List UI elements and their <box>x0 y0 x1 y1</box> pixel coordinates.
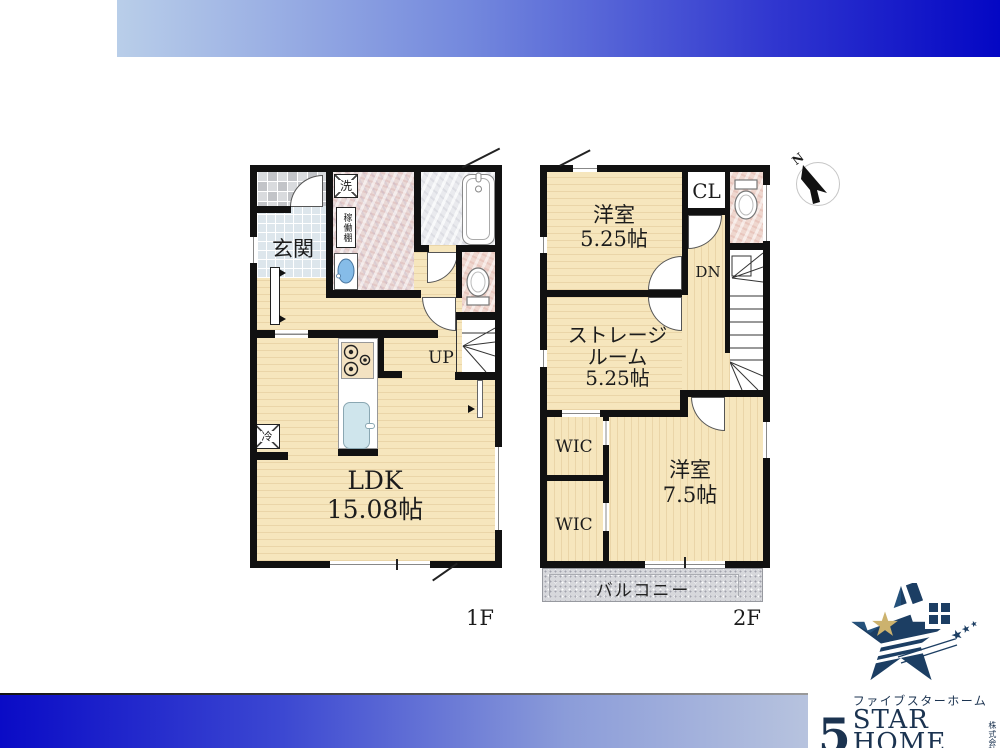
understair-door <box>477 380 483 418</box>
washbasin-icon <box>335 254 357 289</box>
wall <box>725 243 763 250</box>
toilet1-icon <box>462 252 495 312</box>
bottom-gradient-banner <box>0 695 808 748</box>
cabinet-arrow <box>279 315 286 323</box>
bedroom1-label: 洋室 5.25帖 <box>560 203 668 251</box>
company-logo-text: 5 ファイブスターホーム STAR HOME 株式 会社 <box>818 692 1000 748</box>
balcony-label: バルコニー <box>543 576 743 601</box>
laundry-box: 洗 <box>334 174 358 198</box>
sink-handle <box>365 423 375 429</box>
logo-latin: STAR HOME <box>853 709 988 748</box>
door-gap <box>603 421 609 445</box>
wall <box>257 206 291 213</box>
wall <box>688 390 763 397</box>
wic-lower-label: WIC <box>548 515 600 535</box>
toilet2-icon <box>730 172 763 243</box>
stove <box>341 342 374 379</box>
kitchen-sink <box>343 402 370 449</box>
compass: N <box>792 156 844 208</box>
genkan-label: 玄関 <box>260 233 326 263</box>
storage-name2: ルーム <box>555 347 680 369</box>
floor2-plan: バルコニー <box>540 165 770 605</box>
logo-corp-bottom: 会社 <box>988 739 1000 748</box>
floor-plan-page: N 洗 稼 <box>0 0 1000 748</box>
bedroom2-size: 7.5帖 <box>632 483 748 508</box>
counter-cap <box>338 449 378 456</box>
shelf-label: 稼働棚 <box>342 213 351 243</box>
bedroom1-name: 洋室 <box>560 203 668 227</box>
fridge-box: 冷 <box>254 424 280 449</box>
ldk-label: LDK 15.08帖 <box>305 467 445 525</box>
wall-outer <box>250 165 257 568</box>
fridge-label: 冷 <box>261 431 274 442</box>
faucet-icon <box>471 171 487 197</box>
window <box>763 185 770 241</box>
wall <box>688 208 727 215</box>
ldk-size: 15.08帖 <box>305 496 445 525</box>
window-tick <box>684 557 686 568</box>
wall <box>455 372 495 380</box>
bedroom1-size: 5.25帖 <box>560 227 668 251</box>
floor1-plan: 洗 稼働棚 <box>250 165 502 568</box>
shelf-box: 稼働棚 <box>336 207 356 248</box>
wall <box>308 330 438 338</box>
down-label: DN <box>690 263 726 281</box>
wall <box>326 165 333 298</box>
wall <box>456 312 495 320</box>
stove-burners-icon <box>342 343 373 378</box>
window <box>330 561 430 568</box>
wall <box>680 390 688 417</box>
wall <box>547 475 603 481</box>
ldk-name: LDK <box>305 467 445 496</box>
wall <box>333 290 421 298</box>
window <box>495 447 502 530</box>
vent <box>540 237 547 253</box>
storage-label: ストレージ ルーム 5.25帖 <box>555 325 680 390</box>
window <box>763 422 770 458</box>
laundry-label: 洗 <box>339 180 353 192</box>
door-gap <box>562 410 600 417</box>
logo-mid: ファイブスターホーム STAR HOME <box>853 692 988 748</box>
logo-corp: 株式 会社 <box>988 722 1000 748</box>
floor1-caption: 1F <box>458 606 502 630</box>
door-gap <box>603 503 609 531</box>
up-label: UP <box>424 348 458 368</box>
top-gradient-banner <box>117 0 1000 57</box>
closet-label: CL <box>688 179 725 203</box>
window <box>573 165 597 172</box>
logo-five: 5 <box>818 718 851 748</box>
bedroom2-label: 洋室 7.5帖 <box>632 458 748 508</box>
vent <box>540 350 547 367</box>
wall <box>456 245 495 252</box>
floor2-caption: 2F <box>725 606 769 630</box>
logo-corp-top: 株式 <box>988 722 1000 739</box>
wall <box>414 165 421 252</box>
wall <box>547 290 682 297</box>
window-tick <box>396 559 398 570</box>
company-logo-star-icon <box>843 583 983 691</box>
bedroom2-name: 洋室 <box>632 458 748 483</box>
cabinet-arrow <box>279 269 286 277</box>
understair-arrow <box>468 405 475 413</box>
washbasin <box>334 253 358 290</box>
north-arrow-icon <box>796 162 840 206</box>
wall <box>378 371 402 378</box>
storage-name1: ストレージ <box>555 325 680 347</box>
window <box>250 237 257 263</box>
storage-size: 5.25帖 <box>555 368 680 390</box>
bathtub <box>462 174 495 245</box>
stairs-down-icon <box>730 250 763 390</box>
wic-upper-label: WIC <box>548 437 600 457</box>
stairs-up-icon <box>462 320 495 372</box>
sliding-door <box>275 330 308 338</box>
wall <box>421 245 429 252</box>
balcony: バルコニー <box>542 568 763 602</box>
